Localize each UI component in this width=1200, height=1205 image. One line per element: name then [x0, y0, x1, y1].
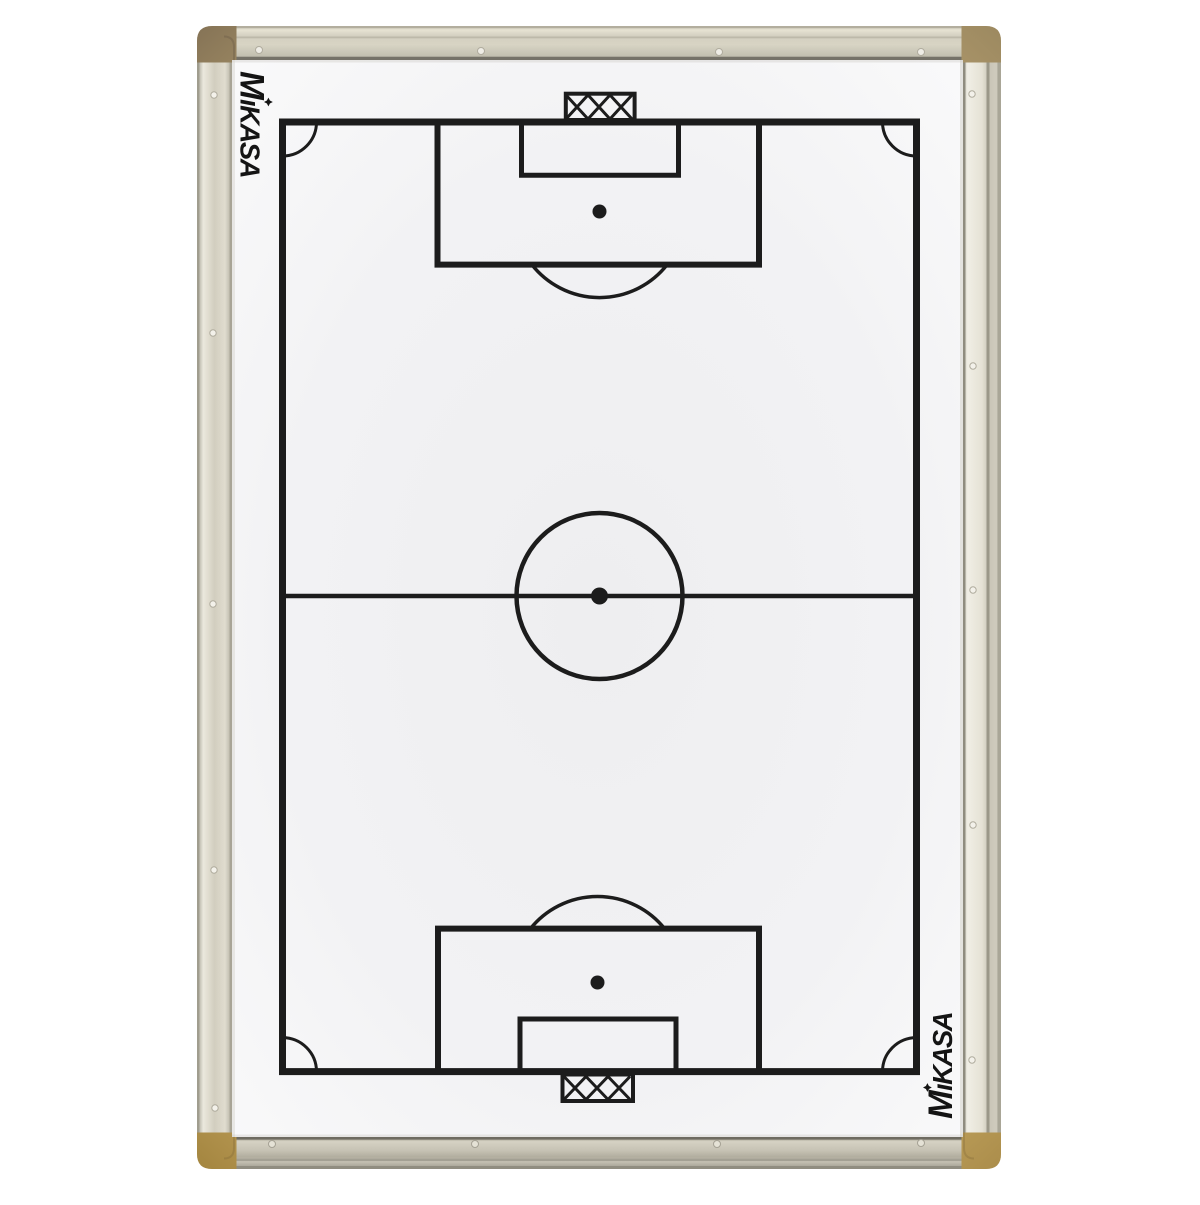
- svg-text:M: M: [922, 1089, 960, 1119]
- svg-text:M: M: [233, 71, 271, 101]
- svg-text:ıKASA: ıKASA: [927, 1013, 958, 1091]
- svg-text:ıKASA: ıKASA: [235, 99, 266, 177]
